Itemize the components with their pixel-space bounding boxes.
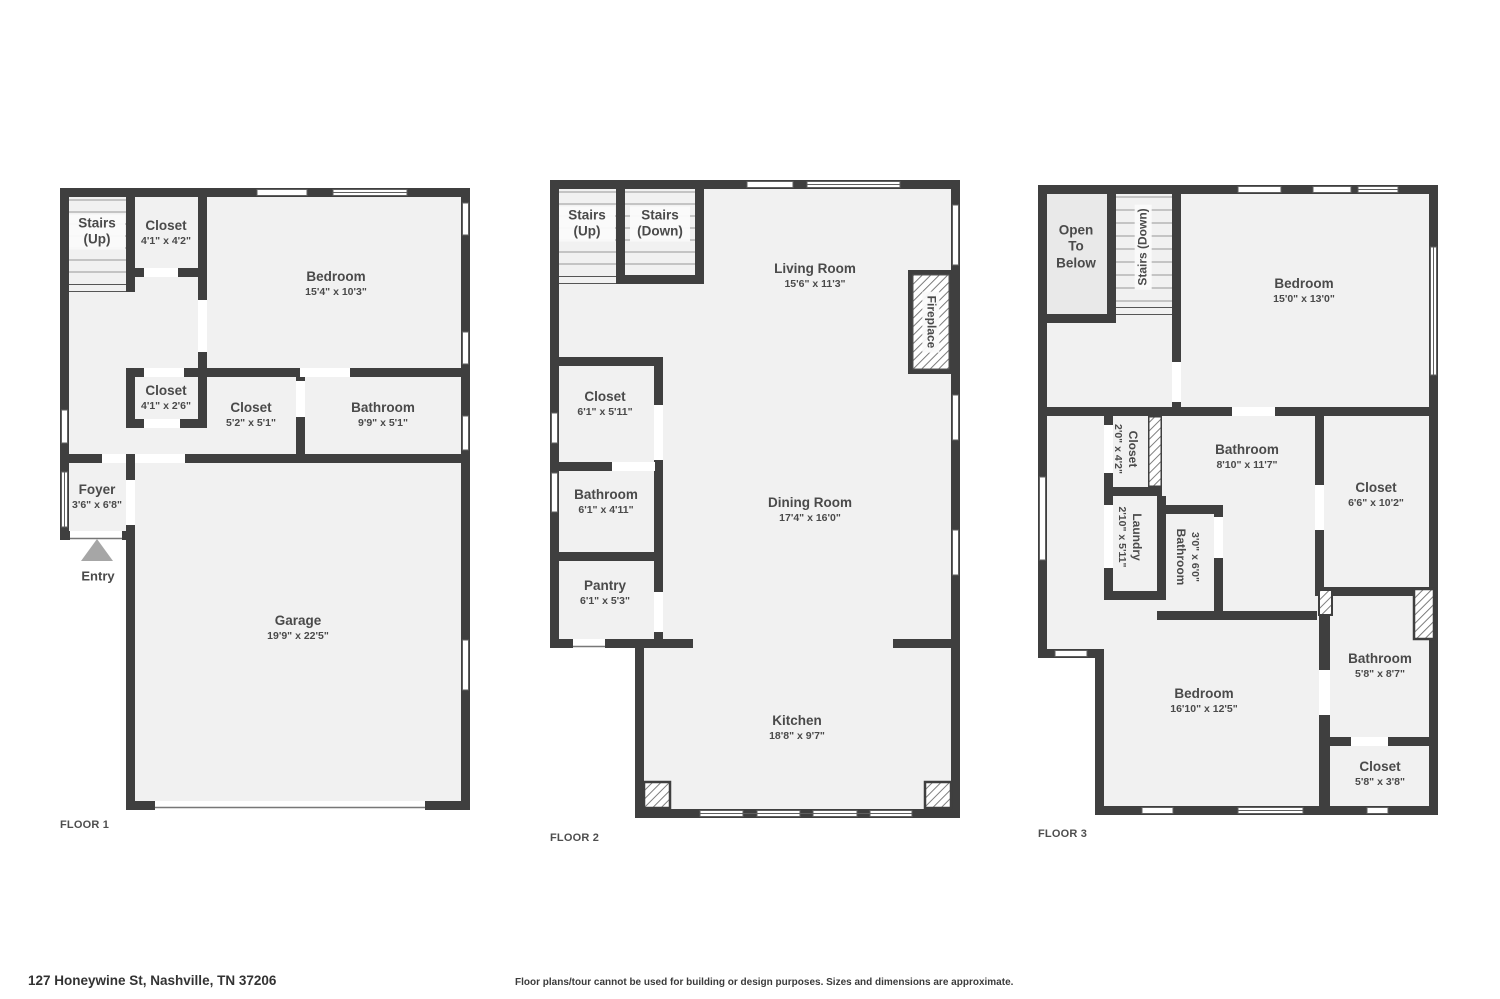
room-label-bathroom-f1: Bathroom 9'9" x 5'1": [351, 400, 415, 430]
room-label-open-to-below-f3: Open To Below: [1054, 222, 1098, 271]
room-label-closet-walkin-f3: Closet 6'6" x 10'2": [1348, 480, 1404, 510]
room-label-stairs-down-f3: Stairs (Down): [1135, 204, 1152, 289]
room-label-bedroom-lower-f3: Bedroom 16'10" x 12'5": [1170, 686, 1238, 716]
entry-label: Entry: [81, 569, 114, 584]
room-label-closet-f1c: Closet 5'2" x 5'1": [226, 400, 276, 430]
room-label-bathroom-f2: Bathroom 6'1" x 4'11": [574, 487, 638, 517]
disclaimer-text: Floor plans/tour cannot be used for buil…: [515, 977, 1013, 988]
room-label-kitchen-f2: Kitchen 18'8" x 9'7": [769, 713, 825, 743]
floor-2-tag: FLOOR 2: [550, 832, 599, 844]
room-label-stairs-up-f2: Stairs (Up): [559, 207, 615, 242]
room-label-stairs-down-f2: Stairs (Down): [630, 207, 690, 242]
room-label-closet-f2: Closet 6'1" x 5'11": [577, 389, 632, 419]
floor-plan-3: Open To Below Stairs (Down) Bedroom 15'0…: [1038, 185, 1438, 845]
room-label-bathroom-small-f3: 3'0" x 6'0" Bathroom: [1174, 529, 1202, 586]
room-label-closet-f1a: Closet 4'1" x 4'2": [141, 218, 191, 248]
room-label-bathroom-ensuite-f3: Bathroom 5'8" x 8'7": [1348, 651, 1412, 681]
room-label-garage-f1: Garage 19'9" x 22'5": [267, 613, 329, 643]
room-label-closet-small-f3: Closet 2'0" x 4'2": [1112, 424, 1140, 474]
floor-plan-2: Stairs (Up) Stairs (Down) Living Room 15…: [550, 180, 962, 850]
room-label-bedroom-f1: Bedroom 15'4" x 10'3": [305, 269, 367, 299]
room-label-foyer-f1: Foyer 3'6" x 6'8": [67, 482, 127, 512]
floor-3-tag: FLOOR 3: [1038, 828, 1087, 840]
room-label-dining-room-f2: Dining Room 17'4" x 16'0": [768, 495, 852, 525]
room-label-living-room-f2: Living Room 15'6" x 11'3": [774, 261, 856, 291]
room-label-pantry-f2: Pantry 6'1" x 5'3": [580, 578, 630, 608]
room-label-laundry-f3: Laundry 2'10" x 5'11": [1116, 506, 1144, 567]
room-label-bathroom-large-f3: Bathroom 8'10" x 11'7": [1215, 442, 1279, 472]
room-label-closet-f1b: Closet 4'1" x 2'6": [141, 383, 191, 413]
property-address: 127 Honeywine St, Nashville, TN 37206: [28, 973, 276, 988]
room-label-fireplace-f2: Fireplace: [923, 292, 940, 353]
room-label-bedroom-upper-f3: Bedroom 15'0" x 13'0": [1273, 276, 1335, 306]
entry-arrow-icon: [81, 539, 113, 561]
room-label-closet-lower-f3: Closet 5'8" x 3'8": [1355, 759, 1405, 789]
room-label-stairs-up-f1: Stairs (Up): [69, 215, 125, 250]
floor-plan-1: Stairs (Up) Closet 4'1" x 4'2" Bedroom 1…: [60, 188, 476, 838]
floor-plan-canvas: Stairs (Up) Closet 4'1" x 4'2" Bedroom 1…: [0, 0, 1500, 999]
floor-1-tag: FLOOR 1: [60, 819, 109, 831]
